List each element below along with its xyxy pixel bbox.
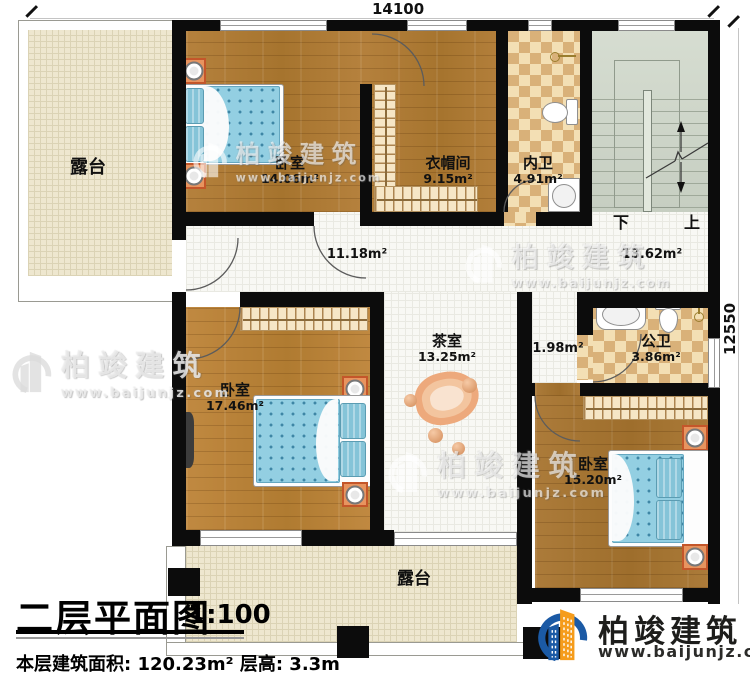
wall-segment [708, 20, 720, 338]
wall-segment [172, 530, 200, 546]
window [618, 20, 675, 31]
window [220, 20, 327, 31]
wall-segment [327, 20, 407, 31]
wall-segment [496, 31, 508, 226]
wall-segment [580, 31, 592, 212]
room-label-tea-room: 茶室13.25m² [418, 333, 476, 365]
wall-segment [593, 292, 708, 308]
watermark-logo-icon [12, 348, 54, 396]
dim-line-top [30, 18, 714, 19]
window [580, 588, 683, 602]
terrace-top-floor [28, 30, 174, 276]
title-scale: 1:100 [188, 600, 271, 630]
stair-down-label: 下 [613, 209, 629, 233]
window [528, 20, 552, 31]
stair-rail [643, 90, 652, 212]
sink-basin [552, 184, 576, 208]
dim-right-value: 12550 [721, 301, 739, 357]
wall-segment [683, 588, 720, 602]
nightstand-icon [342, 482, 368, 507]
title-stats: 本层建筑面积: 120.23m² 层高: 3.3m [16, 650, 340, 676]
bedroom2-wardrobe [240, 307, 368, 331]
wall-segment [708, 388, 720, 604]
wall-segment [360, 84, 372, 226]
wall-segment [366, 212, 504, 226]
rug-stone [452, 442, 465, 455]
pillow [185, 88, 204, 124]
wall-segment [172, 20, 186, 240]
towel-bar [558, 55, 576, 57]
lamp-icon [346, 485, 365, 504]
room-label-stair-hall: 13.62m² [622, 248, 682, 263]
room-label-terrace-bottom: 露台 [397, 570, 431, 590]
wall-segment [302, 530, 394, 546]
brand-logo-icon [536, 604, 592, 664]
brand-url: www.baijunjz.com [598, 642, 750, 661]
room-label-closet: 衣帽间9.15m² [423, 155, 472, 187]
closet-rack-bottom [374, 186, 478, 212]
sliding-door [394, 532, 517, 546]
bedroom3-door-threshold [535, 383, 580, 396]
rug-stone [404, 394, 417, 407]
title-underline [16, 630, 244, 634]
dim-top-value: 14100 [372, 0, 424, 18]
window [407, 20, 467, 31]
room-label-corridor: 11.18m² [327, 248, 387, 263]
nightstand-icon [682, 425, 708, 451]
door-threshold [504, 212, 536, 226]
lamp-icon [185, 167, 204, 186]
wall-segment [370, 307, 384, 546]
lamp-icon [185, 62, 204, 81]
dim-tick [727, 15, 739, 27]
room-label-bedroom3: 卧室15.20m² [564, 456, 622, 488]
room-label-vestibule: 1.98m² [532, 342, 583, 357]
lamp-icon [686, 548, 705, 567]
room-label-terrace-top: 露台 [70, 158, 106, 179]
lamp-icon [686, 429, 705, 448]
door-gap [172, 240, 186, 292]
window [708, 338, 720, 388]
room-label-bedroom2: 卧室17.46m² [206, 382, 264, 414]
rug-stone [462, 378, 477, 393]
column [337, 626, 369, 658]
wall-segment [580, 383, 708, 396]
wall-segment [172, 292, 186, 546]
wall-segment [517, 292, 532, 604]
towel-hook-icon [550, 52, 560, 62]
wall-segment [577, 292, 593, 335]
pillow [340, 403, 366, 439]
wall-segment [172, 212, 314, 226]
dim-tick [707, 5, 719, 17]
pillow [656, 500, 682, 540]
floor-plan: 14100 12550 露台 卧室14.06m² 衣帽间9.15m² 内卫4.9… [0, 0, 750, 676]
wall-segment [240, 292, 384, 307]
window [200, 530, 302, 546]
stair-up-label: 上 [684, 209, 700, 233]
dim-tick [25, 5, 37, 17]
towel-hook-icon [694, 312, 704, 322]
rug-stone [428, 428, 443, 443]
wall-segment [517, 588, 580, 602]
tv-icon [186, 412, 194, 468]
pillow [340, 441, 366, 477]
pillow [185, 126, 204, 162]
vestibule-floor [532, 292, 577, 383]
toilet-bowl [542, 102, 568, 123]
wall-segment [517, 383, 535, 396]
wall-segment [536, 212, 592, 226]
closet-rack-left [374, 84, 396, 192]
title-underline-thin [16, 637, 244, 639]
room-label-inner-bath: 内卫4.91m² [513, 155, 562, 187]
wall-segment [552, 20, 618, 31]
wall-segment [467, 20, 528, 31]
bedroom3-wardrobe [583, 396, 708, 420]
room-label-public-bath: 公卫3.86m² [631, 333, 680, 365]
room-label-bedroom1: 卧室14.06m² [261, 155, 319, 187]
pillow [656, 458, 682, 498]
nightstand-icon [682, 544, 708, 570]
